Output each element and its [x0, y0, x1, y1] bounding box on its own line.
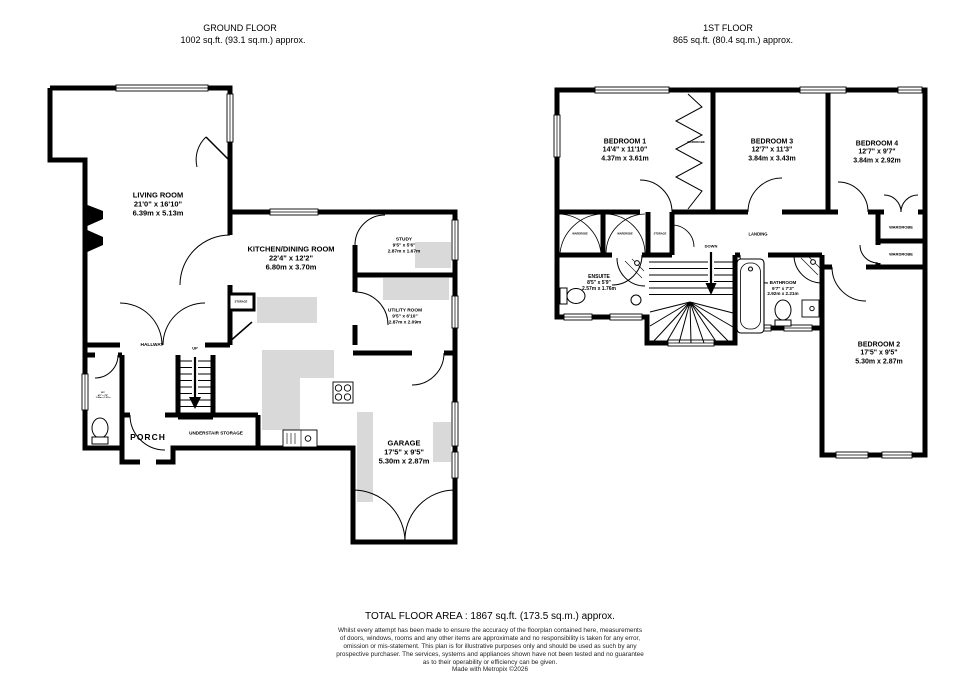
kitchen-dining-label: KITCHEN/DINING ROOM 22'4" x 12'2" 6.80m … — [247, 245, 334, 272]
bedroom1-label: BEDROOM 1 14'4" x 11'10" 4.37m x 3.61m — [601, 138, 648, 163]
bedroom3-label: BEDROOM 3 12'7" x 11'3" 3.84m x 3.43m — [748, 138, 795, 163]
ground-floor-area: 1002 sq.ft. (93.1 sq.m.) approx. — [180, 35, 305, 45]
first-floor-area: 865 sq.ft. (80.4 sq.m.) approx. — [673, 35, 793, 45]
wc-toilet-fixture — [92, 418, 108, 444]
bedroom4-label: BEDROOM 4 12'7" x 9'7" 3.84m x 2.92m — [853, 140, 900, 165]
garage-label: GARAGE 17'5" x 9'5" 5.30m x 2.87m — [379, 439, 430, 466]
ground-floor-title: GROUND FLOOR — [203, 23, 277, 33]
kitchen-storage-label: STORAGE — [235, 300, 248, 303]
wardrobe-right1-label: WARDROBE — [889, 226, 913, 231]
bathroom-toilet-fixture — [775, 300, 791, 326]
wardrobe-b-label: WARDROBE — [617, 232, 632, 235]
wardrobe-right2-label: WARDROBE — [889, 253, 913, 258]
stairs-up — [178, 357, 213, 413]
study-label: STUDY 9'5" x 5'6" 2.87m x 1.67m — [388, 237, 421, 254]
porch-label: PORCH — [130, 432, 166, 442]
disclaimer-line-5: as to their operability or efficiency ca… — [0, 659, 980, 666]
bedroom2-label: BEDROOM 2 17'5" x 9'5" 5.30m x 2.87m — [855, 341, 902, 366]
bathroom-label: BATHROOM 9'7" x 7'3" 2.92m x 2.21m — [767, 280, 798, 297]
hallway-label: HALLWAY — [140, 343, 163, 349]
bathtub-fixture — [737, 259, 764, 333]
stairs-down — [649, 252, 733, 343]
wardrobe-zigzag-label: WARDROBE — [687, 141, 705, 145]
disclaimer-line-2: of doors, windows, rooms and any other i… — [0, 635, 980, 642]
floorplan-drawing — [0, 0, 980, 673]
understair-storage-label: UNDERSTAIR STORAGE — [189, 430, 243, 436]
wardrobe-rail-zigzag — [676, 94, 702, 209]
wc-label: WC 4'6" x 3'6" 1.38m x 1.07m — [96, 392, 111, 400]
floorplan-page: { "colors": { "wall": "#000000", "shadin… — [0, 0, 980, 673]
disclaimer-line-1: Whilst every attempt has been made to en… — [0, 627, 980, 634]
living-room-label: LIVING ROOM 21'0" x 16'10" 6.39m x 5.13m — [133, 191, 184, 218]
disclaimer-line-4: prospective purchaser. The services, sys… — [0, 651, 980, 658]
ensuite-sink-fixture — [631, 295, 641, 305]
ensuite-label: ENSUITE 8'5" x 5'9" 2.57m x 1.76m — [582, 274, 616, 292]
stairs-down-label: DOWN — [705, 245, 718, 250]
total-floor-area: TOTAL FLOOR AREA : 1867 sq.ft. (173.5 sq… — [0, 611, 980, 622]
disclaimer-line-3: omission or mis-statement. This plan is … — [0, 643, 980, 650]
kitchen-sink-fixture — [283, 430, 317, 447]
landing-label: LANDING — [748, 231, 767, 236]
utility-room-label: UTILITY ROOM 9'5" x 6'10" 2.87m x 2.09m — [388, 308, 422, 325]
bathroom-sink-fixture — [802, 300, 819, 317]
metropix-credit: Made with Metropix ©2026 — [0, 666, 980, 673]
first-floor-title: 1ST FLOOR — [703, 23, 753, 33]
stove-fixture — [333, 382, 353, 403]
wardrobe-a-label: WARDROBE — [572, 232, 587, 235]
stairs-up-label: UP — [192, 347, 198, 352]
landing-storage-label: STORAGE — [654, 232, 667, 235]
fireplace — [85, 204, 103, 253]
